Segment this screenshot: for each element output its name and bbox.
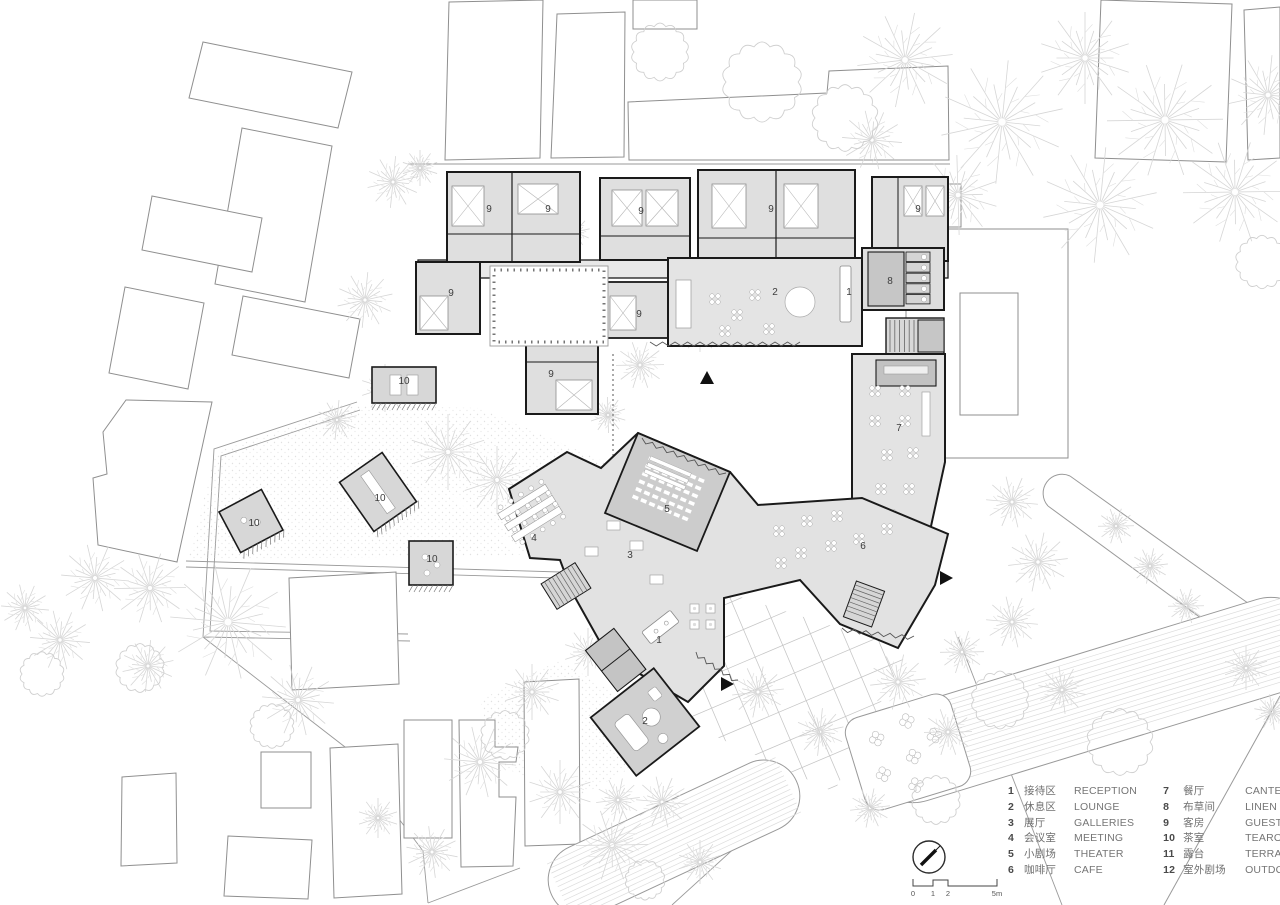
room-label: 9	[448, 288, 454, 299]
room-label: 9	[486, 204, 492, 215]
legend-item: 6咖啡厅CAFE	[1008, 862, 1137, 878]
tree-icon	[114, 554, 186, 623]
north-arrow-icon	[913, 841, 945, 873]
legend-item: 11露台TERRACE	[1163, 846, 1280, 862]
room-label: 2	[772, 287, 778, 298]
legend-item: 8布草间LINEN ROOM	[1163, 799, 1280, 815]
legend-item-zh: 茶室	[1183, 830, 1245, 845]
room-label: 1	[846, 287, 852, 298]
tree-icon	[170, 566, 286, 679]
legend-item-zh: 客房	[1183, 815, 1245, 830]
legend-item-en: GALLERIES	[1074, 817, 1134, 829]
legend-item: 3展厅GALLERIES	[1008, 815, 1137, 831]
tree-icon	[941, 60, 1062, 183]
legend-item-number: 10	[1163, 832, 1183, 844]
site-plan-svg: 99999999218753461210101010 0125m	[0, 0, 1280, 905]
legend-item-number: 9	[1163, 817, 1183, 829]
legend-item-en: TEAROOM	[1245, 832, 1280, 844]
legend-item-number: 8	[1163, 801, 1183, 813]
legend-item: 9客房GUEST ROOM	[1163, 815, 1280, 831]
tree-icon	[1098, 509, 1134, 543]
legend-item-zh: 小剧场	[1024, 846, 1074, 861]
legend-item: 4会议室MEETING	[1008, 830, 1137, 846]
room-label: 10	[398, 376, 410, 387]
room-label: 10	[426, 554, 438, 565]
room-label: 7	[896, 423, 902, 434]
tree-icon	[632, 23, 689, 81]
room-label: 1	[656, 635, 662, 646]
tree-icon	[61, 545, 129, 611]
legend-item-zh: 餐厅	[1183, 783, 1245, 798]
legend-item: 12室外剧场OUTDOOR THEATER	[1163, 862, 1280, 878]
legend-item-zh: 布草间	[1183, 799, 1245, 814]
room-label: 9	[915, 204, 921, 215]
scale-bar: 0125m	[911, 879, 1002, 898]
tree-icon	[986, 597, 1038, 648]
room-label: 10	[248, 518, 260, 529]
scale-tick-label: 0	[911, 889, 915, 898]
tree-icon	[1008, 533, 1068, 592]
legend-column: 7餐厅CANTEEN8布草间LINEN ROOM9客房GUEST ROOM10茶…	[1163, 783, 1280, 878]
room-label: 4	[531, 533, 537, 544]
legend-item-en: LOUNGE	[1074, 801, 1120, 813]
legend-item-zh: 露台	[1183, 846, 1245, 861]
tree-icon	[1236, 235, 1280, 288]
room-label: 9	[548, 369, 554, 380]
legend-item-number: 5	[1008, 848, 1024, 860]
tree-icon	[20, 652, 64, 696]
room-label: 9	[636, 309, 642, 320]
legend-item-number: 7	[1163, 785, 1183, 797]
legend-item-en: MEETING	[1074, 832, 1123, 844]
scale-tick-label: 1	[931, 889, 935, 898]
tree-icon	[123, 640, 174, 692]
site-plan-canvas: 99999999218753461210101010 0125m 1接待区REC…	[0, 0, 1280, 905]
room-label: 2	[642, 716, 648, 727]
legend-item: 2休息区LOUNGE	[1008, 799, 1137, 815]
legend-item-number: 11	[1163, 848, 1183, 860]
legend-item-zh: 休息区	[1024, 799, 1074, 814]
legend-item-en: CAFE	[1074, 864, 1103, 876]
legend-item-number: 2	[1008, 801, 1024, 813]
legend-item-en: CANTEEN	[1245, 785, 1280, 797]
legend-item-en: LINEN ROOM	[1245, 801, 1280, 813]
legend-item-zh: 展厅	[1024, 815, 1074, 830]
scale-tick-label: 5m	[992, 889, 1002, 898]
tree-icon	[596, 778, 640, 821]
legend-item-number: 6	[1008, 864, 1024, 876]
legend-column: 1接待区RECEPTION2休息区LOUNGE3展厅GALLERIES4会议室M…	[1008, 783, 1137, 878]
legend-item-zh: 室外剧场	[1183, 862, 1245, 877]
legend-item-zh: 会议室	[1024, 830, 1074, 845]
scale-tick-label: 2	[946, 889, 950, 898]
legend-item-en: GUEST ROOM	[1245, 817, 1280, 829]
legend-item-number: 4	[1008, 832, 1024, 844]
legend-item-en: TERRACE	[1245, 848, 1280, 860]
legend-item: 10茶室TEAROOM	[1163, 830, 1280, 846]
room-label: 8	[887, 276, 893, 287]
legend-item-number: 3	[1008, 817, 1024, 829]
tree-icon	[986, 477, 1038, 528]
room-label: 6	[860, 541, 866, 552]
legend-item-en: THEATER	[1074, 848, 1124, 860]
tree-icon	[1132, 548, 1168, 583]
legend-item: 1接待区RECEPTION	[1008, 783, 1137, 799]
legend-item-number: 1	[1008, 785, 1024, 797]
room-label: 9	[768, 204, 774, 215]
legend-item-zh: 咖啡厅	[1024, 862, 1074, 877]
legend-item: 7餐厅CANTEEN	[1163, 783, 1280, 799]
room-label: 9	[638, 206, 644, 217]
legend-item-en: OUTDOOR THEATER	[1245, 864, 1280, 876]
tree-icon	[616, 342, 664, 388]
legend: 1接待区RECEPTION2休息区LOUNGE3展厅GALLERIES4会议室M…	[1008, 783, 1280, 878]
legend-item: 5小剧场THEATER	[1008, 846, 1137, 862]
room-label: 9	[545, 204, 551, 215]
tree-icon	[940, 631, 984, 673]
legend-item-zh: 接待区	[1024, 783, 1074, 798]
room-label: 10	[374, 493, 386, 504]
legend-item-en: RECEPTION	[1074, 785, 1137, 797]
room-label: 3	[627, 550, 633, 561]
room-label: 5	[664, 504, 670, 515]
tree-icon	[403, 150, 437, 186]
tree-icon	[732, 667, 784, 718]
legend-item-number: 12	[1163, 864, 1183, 876]
tree-icon	[797, 708, 844, 756]
